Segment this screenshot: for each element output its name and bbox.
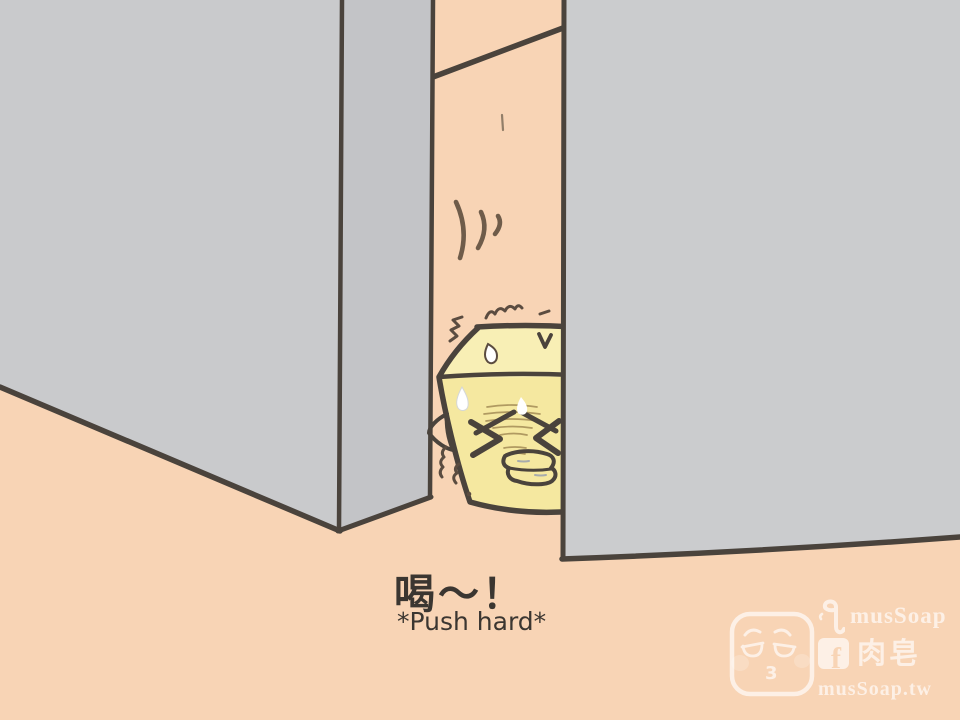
website-url: musSoap.tw — [818, 678, 932, 701]
watermark: 3 musSoap f 肉皂 musSoap.tw — [726, 596, 956, 711]
website-row: musSoap.tw — [818, 672, 953, 701]
brand-name-cjk: 肉皂 — [857, 638, 921, 669]
mascot-blush — [794, 654, 810, 668]
sfx-caption: *Push hard* — [397, 607, 546, 636]
mascot-left-eye — [742, 643, 763, 656]
mascot-right-eye — [774, 644, 795, 656]
mascot-blush — [731, 655, 749, 671]
squiggle-dot — [467, 492, 472, 497]
brand-row: musSoap — [818, 598, 953, 638]
soap-top-outline — [477, 326, 575, 328]
crack-tick — [502, 115, 503, 130]
facebook-icon: f — [818, 638, 849, 669]
right-wall-face — [563, 0, 960, 560]
facebook-row: f 肉皂 — [818, 638, 953, 672]
facebook-f-glyph: f — [831, 642, 842, 669]
teeth-shading — [518, 461, 529, 462]
mascot-badge-number: 3 — [765, 663, 778, 684]
mascot-right-eyebrow — [775, 630, 790, 635]
mascot-left-eyebrow — [745, 630, 760, 635]
right-wall-gap-edge — [563, 0, 564, 559]
comic-panel: 喝～！ *Push hard* 3 musSoap — [0, 0, 960, 720]
wrinkle-line — [504, 447, 526, 448]
left-wall-side-face — [338, 0, 433, 531]
soap-mascot-logo: 3 — [729, 611, 815, 697]
seahorse-logo-icon — [818, 598, 845, 636]
right-wall — [562, 0, 960, 560]
brand-name: musSoap — [850, 598, 946, 634]
watermark-text-block: musSoap f 肉皂 musSoap.tw — [818, 598, 953, 701]
teeth-shading — [535, 475, 546, 476]
left-wall-corner-edge — [339, 0, 342, 530]
